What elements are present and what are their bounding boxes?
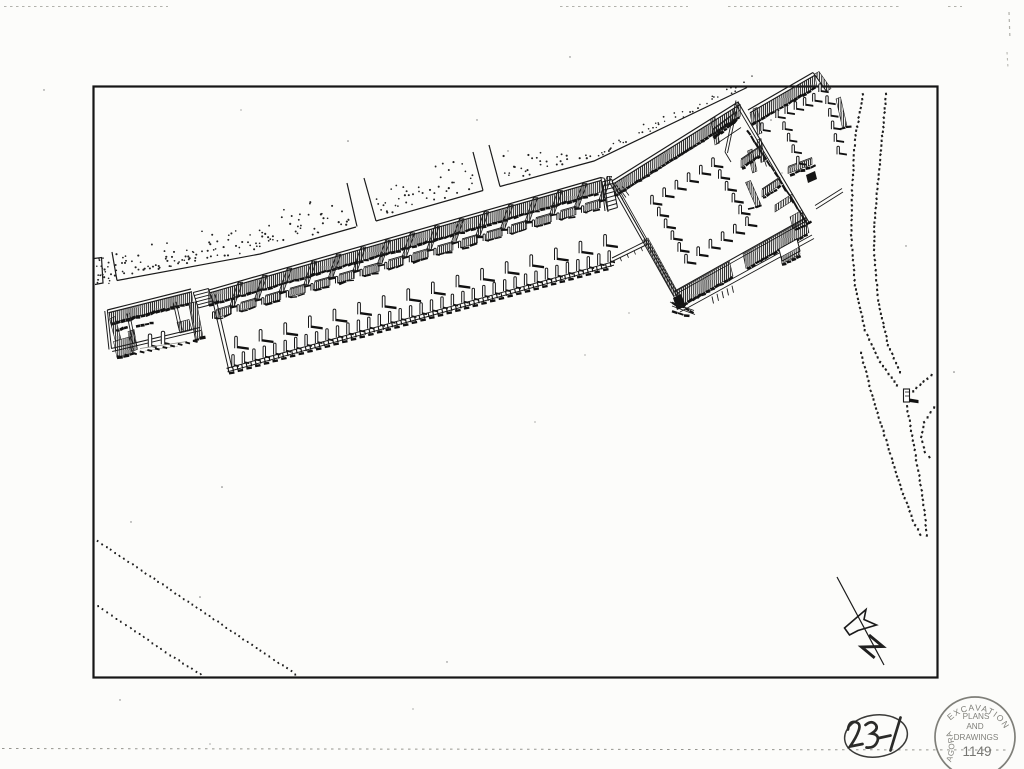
svg-text:AND: AND: [966, 722, 983, 731]
svg-text:1149: 1149: [962, 744, 991, 759]
svg-text:PLANS: PLANS: [963, 712, 990, 721]
svg-text:DRAWINGS: DRAWINGS: [954, 733, 999, 742]
